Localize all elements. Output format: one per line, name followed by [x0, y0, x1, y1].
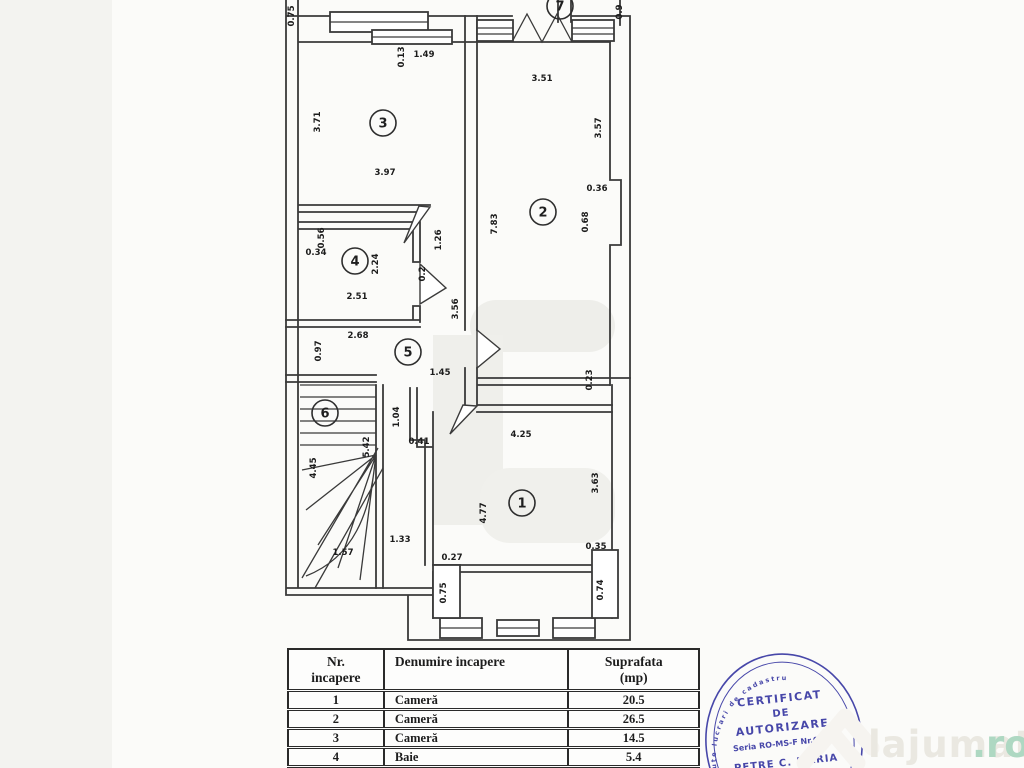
table-cell: Cameră	[384, 691, 569, 710]
dimension-label: 1.45	[430, 368, 451, 378]
table-row: 1Cameră20.5	[288, 691, 699, 710]
entrance-door-zigzag	[512, 14, 572, 42]
stamp-line: CERTIFICAT	[736, 688, 822, 710]
table-cell: 1	[288, 691, 384, 710]
table-row: 3Cameră14.5	[288, 729, 699, 748]
room-number: 7	[555, 0, 564, 15]
dimension-label: 0.23	[585, 369, 595, 390]
wall-pilaster	[433, 565, 460, 618]
table-cell: Cameră	[384, 710, 569, 729]
room-circle	[370, 110, 396, 136]
dimension-label: 5.42	[362, 436, 372, 457]
room-number: 1	[517, 497, 526, 512]
stair-treads	[300, 385, 376, 445]
room-number: 2	[538, 206, 547, 221]
stair-winders	[302, 448, 383, 588]
doors	[404, 206, 500, 434]
dimension-label: 4.77	[479, 502, 489, 523]
table-cell: 4	[288, 748, 384, 767]
dimension-label: 2.24	[371, 253, 381, 274]
dimension-label: 2.51	[347, 292, 368, 302]
stamp-line: AUTORIZARE	[735, 716, 830, 739]
room-circle	[509, 490, 535, 516]
door-swing-icon	[450, 405, 477, 434]
right-wall-detail	[610, 42, 621, 412]
outer-walls	[286, 0, 630, 640]
table-cell: 3	[288, 729, 384, 748]
watermark-logo-icon	[818, 716, 872, 748]
table-cell: 20.5	[568, 691, 699, 710]
scanned-floor-plan-page: Nr. incapere Denumire incapere Suprafata…	[0, 0, 1024, 768]
faint-watermark-shapes	[433, 300, 615, 543]
dimension-label: 0.75	[439, 582, 449, 603]
watermark-logo-icon	[804, 731, 858, 763]
dimension-label: 0.9	[615, 4, 625, 19]
dimension-label: 1.26	[434, 229, 444, 250]
room-number: 3	[378, 117, 387, 132]
door-swing-icon	[404, 206, 430, 243]
dimension-label: 4.45	[309, 457, 319, 478]
room-number-labels: 1234567	[312, 0, 573, 516]
dimension-label: 0.56	[317, 227, 327, 248]
door-swing-icon	[477, 330, 500, 368]
table-row: 2Cameră26.5	[288, 710, 699, 729]
table-cell: 14.5	[568, 729, 699, 748]
dimension-label: 0.75	[287, 5, 297, 26]
room-number: 6	[320, 407, 329, 422]
dimension-label: 3.57	[594, 117, 604, 138]
window-icon	[497, 620, 539, 636]
interior-walls	[286, 16, 630, 618]
dimension-label: 7.83	[490, 213, 500, 234]
stamp-line: PETRE C. MARIA	[734, 752, 839, 768]
table-cell: 2	[288, 710, 384, 729]
room-number: 4	[350, 255, 359, 270]
dimension-label: 0.74	[596, 579, 606, 600]
window-icon	[440, 618, 482, 638]
dimension-label: 3.63	[591, 472, 601, 493]
legend-header: Nr. incapere Denumire incapere Suprafata…	[288, 649, 699, 691]
dimension-label: 0.36	[587, 184, 608, 194]
room-circle	[395, 339, 421, 365]
window-glass-lines	[330, 22, 614, 628]
window-icon	[553, 618, 595, 638]
table-cell: Cameră	[384, 729, 569, 748]
wall-pilaster	[592, 550, 618, 618]
door-swing-icon	[420, 264, 446, 304]
dimension-label: 4.25	[511, 430, 532, 440]
room-circle	[530, 199, 556, 225]
dimension-labels: 0.751.490.133.510.93.713.973.577.830.360…	[287, 4, 625, 603]
site-watermark: lajumate .ro	[804, 716, 1024, 766]
dimension-label: 1.04	[392, 406, 402, 427]
room-circle	[342, 248, 368, 274]
watermark-tld: .ro	[972, 723, 1024, 766]
room-circle	[547, 0, 573, 19]
table-cell: Baie	[384, 748, 569, 767]
room-number: 5	[403, 346, 412, 361]
windows	[330, 12, 618, 638]
dimension-label: 0.35	[586, 542, 607, 552]
walls	[286, 0, 630, 640]
window-icon	[372, 30, 452, 44]
staircase	[300, 385, 383, 588]
dimension-label: 3.97	[375, 168, 396, 178]
stamp-line: DE	[772, 707, 790, 720]
room-circle	[312, 400, 338, 426]
header-denumire: Denumire incapere	[384, 649, 569, 691]
window-icon	[477, 20, 513, 41]
watermark-text: lajumate	[868, 723, 1024, 766]
dimension-label: 0.2	[418, 266, 428, 281]
dimension-label: 0.34	[306, 248, 327, 258]
dimension-label: 0.13	[397, 46, 407, 67]
dimension-label: 0.41	[409, 437, 430, 447]
scan-page-edge-shade	[0, 0, 112, 768]
dimension-label: 1.57	[333, 548, 354, 558]
header-nr-incapere: Nr. incapere	[288, 649, 384, 691]
table-cell: 5.4	[568, 748, 699, 767]
stamp-line: Seria RO-MS-F Nr.0101	[733, 734, 836, 754]
window-icon	[572, 20, 614, 41]
room-legend-table: Nr. incapere Denumire incapere Suprafata…	[287, 648, 700, 768]
window-icon	[330, 12, 428, 32]
dimension-label: 0.97	[314, 340, 324, 361]
header-suprafata: Suprafata (mp)	[568, 649, 699, 691]
table-cell: 26.5	[568, 710, 699, 729]
table-row: 4Baie5.4	[288, 748, 699, 767]
dimension-label: 3.56	[451, 298, 461, 319]
dimension-label: 2.68	[348, 331, 369, 341]
dimension-label: 3.71	[313, 111, 323, 132]
legend-rows: 1Cameră20.52Cameră26.53Cameră14.54Baie5.…	[288, 691, 699, 767]
dimension-label: 1.33	[390, 535, 411, 545]
dimension-label: 1.49	[414, 50, 435, 60]
dimension-label: 0.68	[581, 211, 591, 232]
dimension-label: 0.27	[442, 553, 463, 563]
dimension-label: 3.51	[532, 74, 553, 84]
